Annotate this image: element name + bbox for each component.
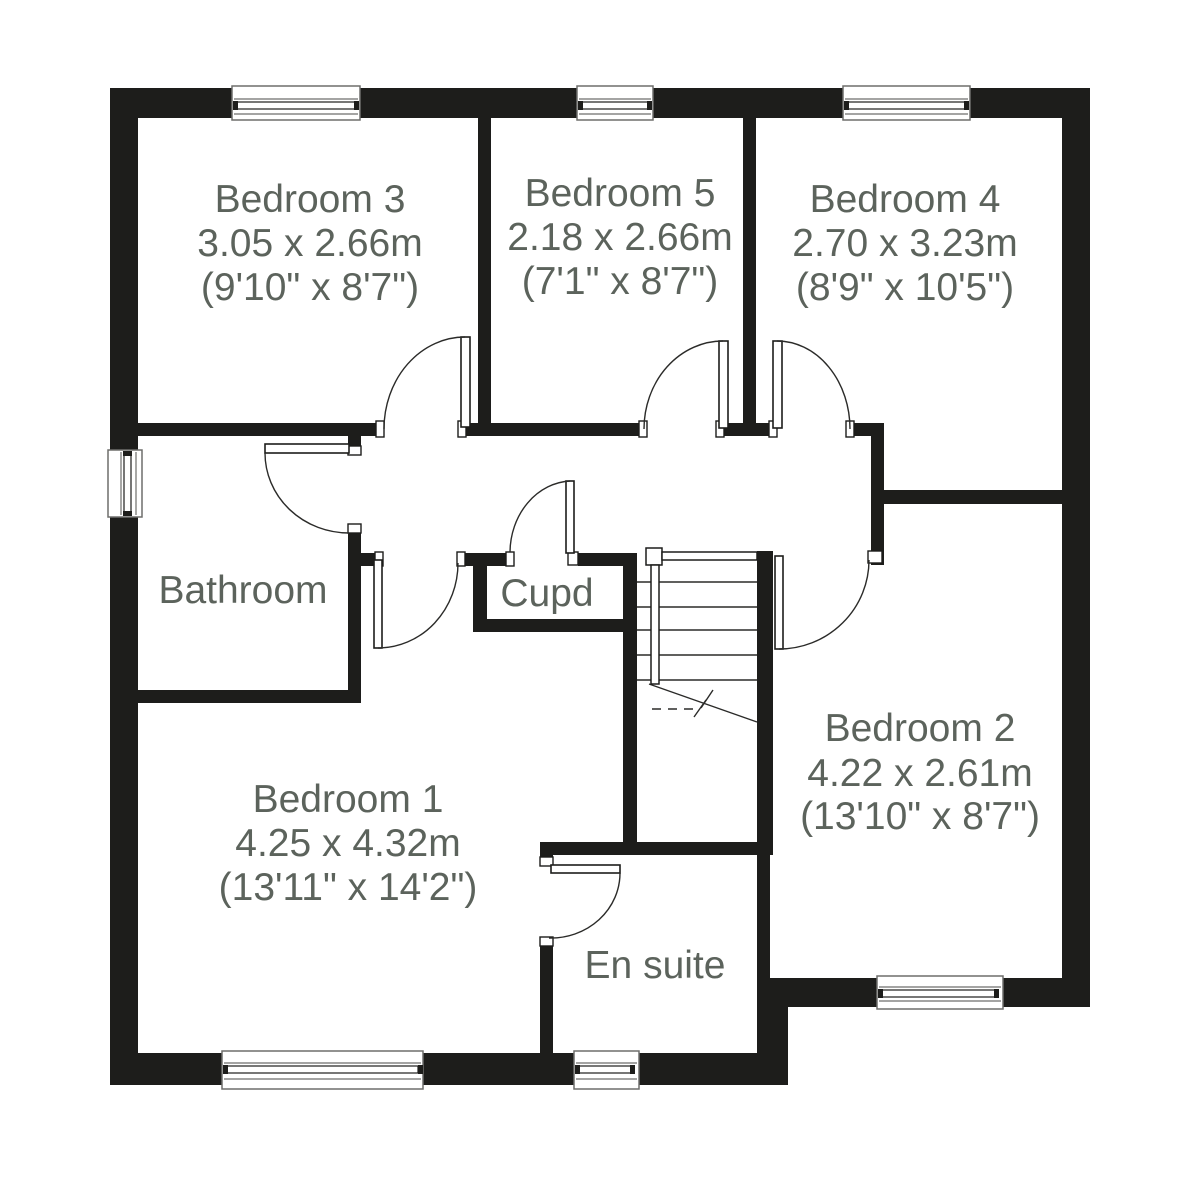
room-label-bedroom3-metric: 3.05 x 2.66m xyxy=(197,222,422,265)
wall-ensuite-right xyxy=(757,855,770,1007)
wall-exterior-right xyxy=(1062,88,1090,1007)
door-leaf xyxy=(775,556,783,649)
floor-plan-page: Bedroom 3 3.05 x 2.66m (9'10" x 8'7") Be… xyxy=(0,0,1200,1200)
stair-handrail-left xyxy=(651,565,659,684)
door-leaf xyxy=(551,865,620,873)
doorframe xyxy=(639,421,647,437)
door-bedroom4 xyxy=(773,341,850,429)
window-bedroom2 xyxy=(877,976,1003,1009)
room-label-bedroom4-name: Bedroom 4 xyxy=(810,178,1001,221)
door-bedroom3 xyxy=(384,337,470,429)
room-label-bedroom1-imperial: (13'11" x 14'2") xyxy=(219,866,478,909)
wall-bedroom1-top-stub xyxy=(361,553,375,566)
room-label-bedroom3-name: Bedroom 3 xyxy=(215,178,406,221)
door-leaf xyxy=(265,444,349,453)
floor-plan: Bedroom 3 3.05 x 2.66m (9'10" x 8'7") Be… xyxy=(0,0,1200,1200)
room-label-bedroom2-imperial: (13'10" x 8'7") xyxy=(800,795,1040,838)
door-arc xyxy=(378,563,458,648)
stair-newel-post xyxy=(646,548,662,565)
wall-stairwell-left xyxy=(623,553,637,855)
wall-exterior-step xyxy=(757,1007,788,1085)
door-leaf xyxy=(719,341,728,428)
door-leaf xyxy=(773,341,782,428)
doorframe xyxy=(506,552,514,566)
door-leaf xyxy=(566,481,574,553)
room-label-bedroom2-metric: 4.22 x 2.61m xyxy=(807,752,1032,795)
door-arc xyxy=(384,337,465,429)
wall-stairwell-right xyxy=(757,551,773,855)
room-label-bedroom5-metric: 2.18 x 2.66m xyxy=(507,216,732,259)
door-bathroom xyxy=(265,444,349,533)
wall-bedroom3-bedroom5-divider xyxy=(478,118,491,436)
doorframe xyxy=(348,446,361,455)
room-label-bedroom5-name: Bedroom 5 xyxy=(525,172,716,215)
doorframe xyxy=(868,551,882,563)
room-label-bathroom: Bathroom xyxy=(158,569,327,612)
door-bedroom1 xyxy=(374,560,458,648)
door-leaf xyxy=(374,560,382,648)
door-bedroom2 xyxy=(775,556,869,649)
room-label-bedroom4-imperial: (8'9" x 10'5") xyxy=(796,266,1014,309)
wall-ensuite-left-lower xyxy=(540,944,553,1053)
stair-handrail-top xyxy=(662,552,757,560)
stairs xyxy=(637,548,757,722)
door-leaf xyxy=(461,337,470,427)
door-arc xyxy=(510,481,570,552)
door-arc xyxy=(549,873,620,938)
window-bedroom4 xyxy=(843,86,970,120)
room-label-cupboard: Cupd xyxy=(500,572,593,615)
wall-hallway-top-b xyxy=(466,423,639,436)
room-label-ensuite: En suite xyxy=(585,944,726,987)
room-label-bedroom4-metric: 2.70 x 3.23m xyxy=(792,222,1017,265)
wall-exterior-left xyxy=(110,88,138,1085)
room-label-bedroom1-name: Bedroom 1 xyxy=(253,778,444,821)
room-label-bedroom1-metric: 4.25 x 4.32m xyxy=(235,822,460,865)
wall-bathroom-right-stub xyxy=(348,435,361,447)
door-bedroom5 xyxy=(644,341,728,429)
wall-hallway-right-vertical xyxy=(871,423,884,565)
window-bedroom3 xyxy=(232,86,360,120)
stair-break-zigzag xyxy=(694,690,713,717)
wall-bedroom5-bedroom4-divider xyxy=(743,118,756,436)
door-arc xyxy=(779,560,869,649)
doorframe xyxy=(376,421,384,437)
wall-bedroom4-bottom xyxy=(884,490,1062,504)
wall-bathroom-right xyxy=(348,533,361,703)
wall-exterior-bottom-left xyxy=(110,1053,788,1085)
wall-ensuite-top xyxy=(540,842,773,855)
doorframe xyxy=(348,524,361,533)
door-cupboard xyxy=(510,481,574,553)
room-label-bedroom2-name: Bedroom 2 xyxy=(825,707,1016,750)
door-ensuite xyxy=(549,865,620,938)
window-bedroom5 xyxy=(577,86,653,120)
wall-bathroom-bottom xyxy=(138,690,361,703)
door-arc xyxy=(777,341,850,429)
room-label-bedroom3-imperial: (9'10" x 8'7") xyxy=(201,266,419,309)
door-arc xyxy=(265,453,349,533)
window-bedroom1 xyxy=(222,1051,423,1089)
wall-cupboard-bottom xyxy=(473,619,637,632)
wall-hallway-top-d xyxy=(854,423,871,436)
room-label-bedroom5-imperial: (7'1" x 8'7") xyxy=(522,260,719,303)
doorframe xyxy=(568,552,578,565)
door-arc xyxy=(644,341,723,429)
stair-break-diagonal xyxy=(649,684,757,722)
window-bathroom xyxy=(108,450,142,517)
window-ensuite xyxy=(574,1051,639,1089)
wall-hallway-top-a xyxy=(138,423,377,436)
